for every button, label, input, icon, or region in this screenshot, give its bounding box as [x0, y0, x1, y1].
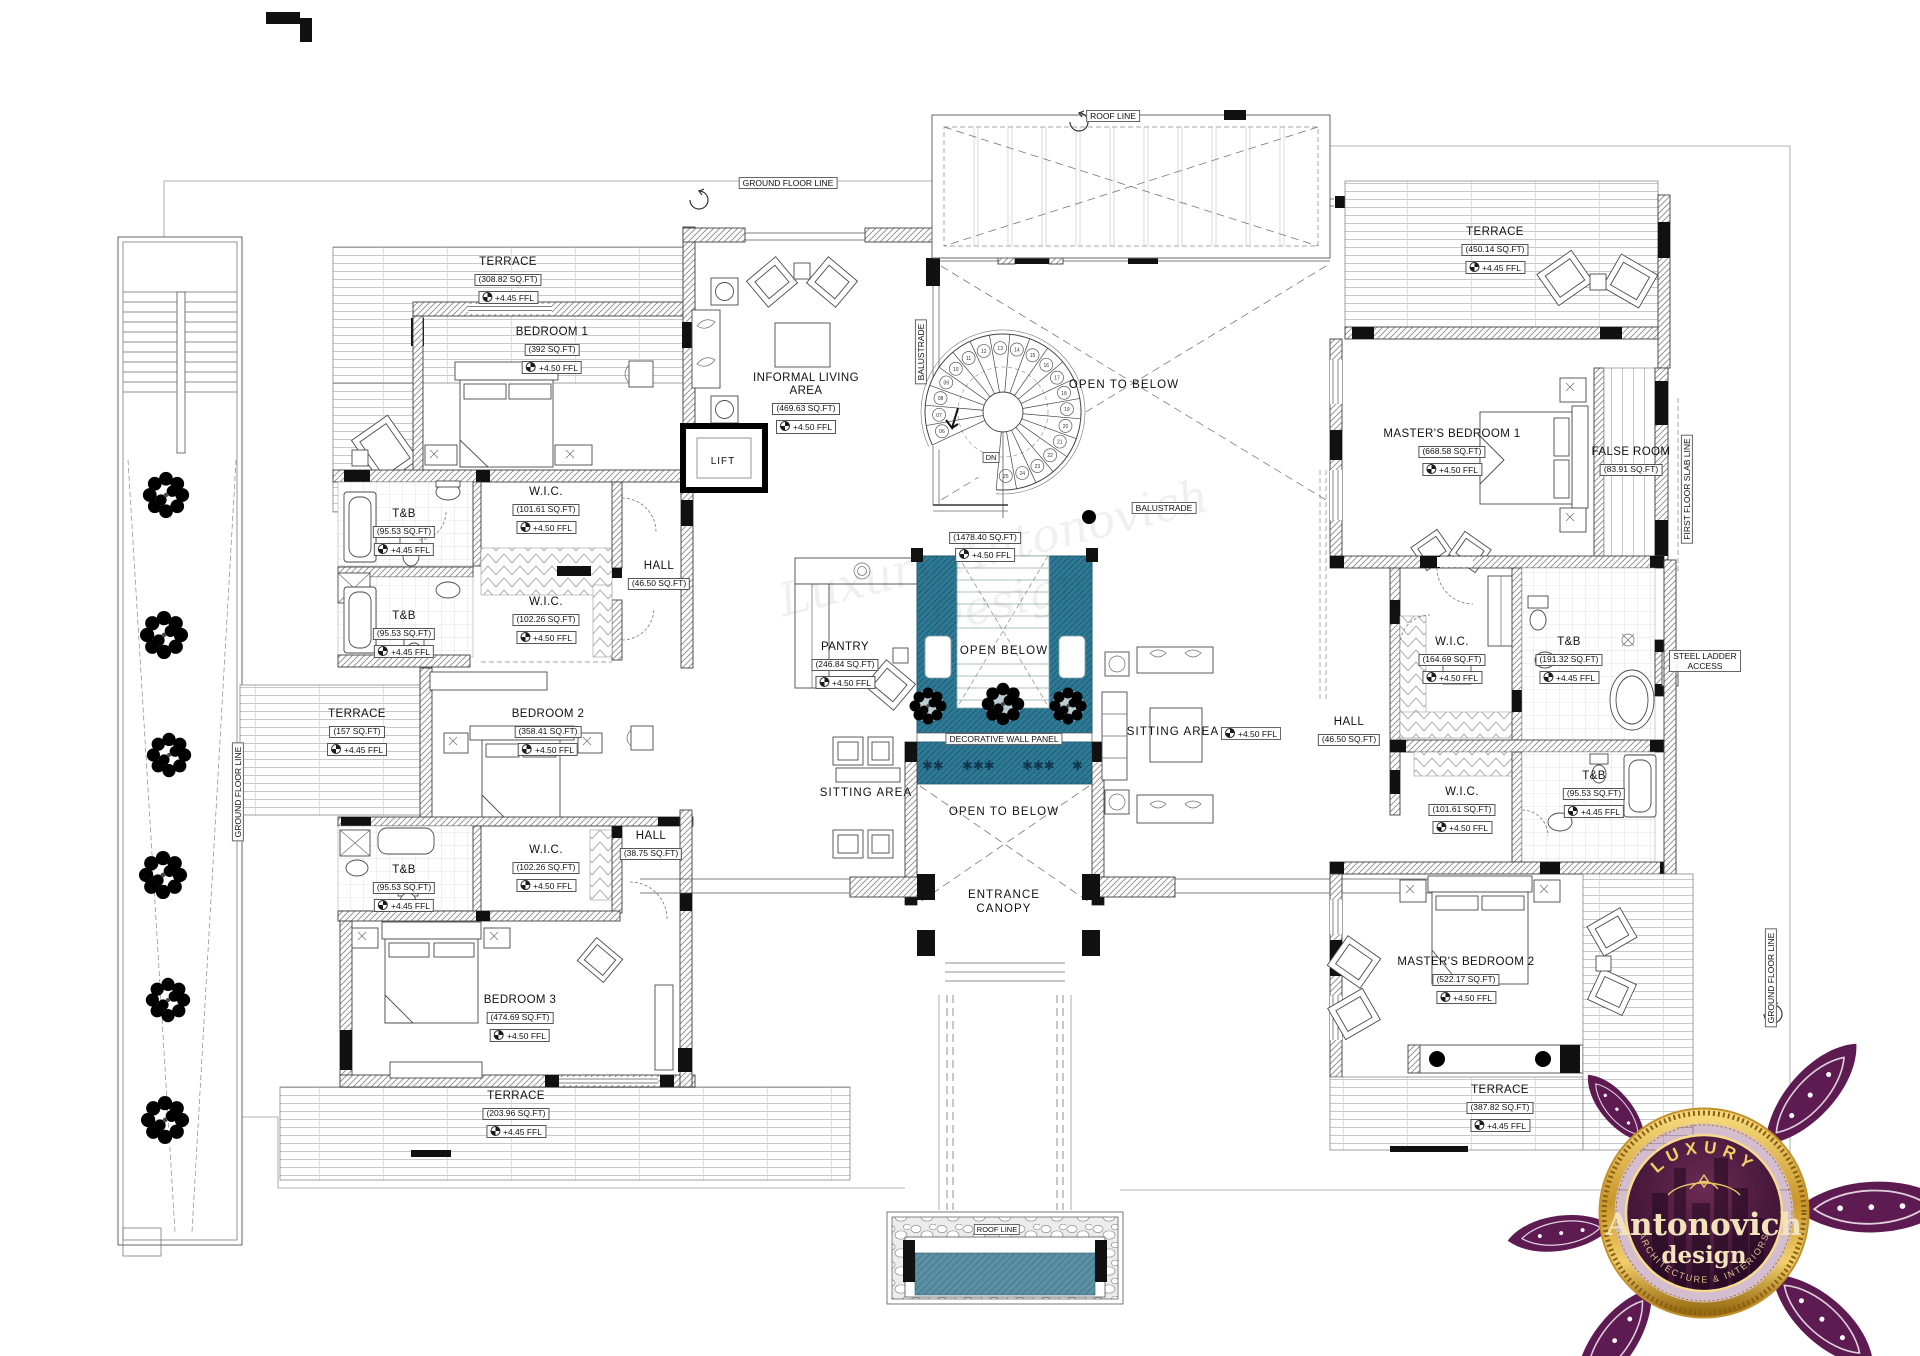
room-label-masters-bedroom-1: MASTER'S BEDROOM 1(668.58 SQ.FT)+4.50 FF… [1383, 428, 1520, 478]
room-label-wic-north: W.I.C.(101.61 SQ.FT)+4.50 FFL [512, 486, 579, 536]
room-ffl: +4.45 FFL [1564, 805, 1624, 819]
room-area: (203.96 SQ.FT) [482, 1108, 549, 1120]
annotation-dn: DN [983, 452, 1000, 463]
svg-text:17: 17 [1054, 376, 1060, 382]
room-ffl: +4.50 FFL [516, 631, 576, 645]
room-area: (102.26 SQ.FT) [512, 862, 579, 874]
annotation-pool-roof-line: ROOF LINE [974, 1224, 1020, 1235]
room-area: (392 SQ.FT) [524, 344, 579, 356]
room-ffl: +4.45 FFL [374, 899, 434, 913]
annotation-sitting-area-right: SITTING AREA [1127, 726, 1219, 740]
svg-text:13: 13 [997, 346, 1003, 352]
room-name: T&B [1535, 636, 1602, 649]
svg-text:19: 19 [1064, 407, 1070, 413]
level-target-icon [1426, 464, 1436, 474]
room-label-tb-south: T&B(95.53 SQ.FT)+4.45 FFL [373, 864, 435, 914]
room-name: W.I.C. [1418, 636, 1485, 649]
room-area: (474.69 SQ.FT) [486, 1012, 553, 1024]
room-name: HALL [628, 560, 690, 573]
room-label-terrace-bottom-left: TERRACE(203.96 SQ.FT)+4.45 FFL [482, 1090, 549, 1140]
room-ffl: +4.45 FFL [327, 743, 387, 757]
logo-brand-text: Antonovich [1605, 1207, 1802, 1243]
room-area: (1478.40 SQ.FT) [949, 532, 1021, 544]
room-area: (308.82 SQ.FT) [474, 274, 541, 286]
annotation-open-to-below-top: OPEN TO BELOW [1069, 379, 1179, 393]
room-ffl: +4.45 FFL [1470, 1119, 1530, 1133]
room-ffl: +4.50 FFL [1432, 821, 1492, 835]
level-target-icon [520, 632, 530, 642]
svg-text:10: 10 [953, 367, 959, 373]
svg-text:07: 07 [936, 413, 942, 419]
annotation-lift: LIFT [711, 456, 736, 468]
svg-text:06: 06 [939, 429, 945, 435]
floorplan-drawing: .w{fill:url(#hatch);stroke:#3f3f3f;strok… [0, 0, 1920, 1356]
annotation-first-floor-slab-line: FIRST FLOOR SLAB LINE [1681, 434, 1693, 543]
room-name: PANTRY [811, 641, 878, 654]
room-name: TERRACE [474, 256, 541, 269]
room-name: TERRACE [327, 708, 387, 721]
room-label-hall-upper-left: HALL(46.50 SQ.FT) [628, 560, 690, 592]
room-area: (95.53 SQ.FT) [373, 628, 435, 640]
svg-text:09: 09 [943, 380, 949, 386]
level-target-icon [1543, 672, 1553, 682]
room-ffl: +4.50 FFL [955, 548, 1015, 562]
room-label-pantry: PANTRY(246.84 SQ.FT)+4.50 FFL [811, 641, 878, 691]
annotation-ground-floor-line-top: GROUND FLOOR LINE [739, 177, 838, 189]
room-ffl: +4.50 FFL [516, 521, 576, 535]
level-target-icon [378, 900, 388, 910]
room-label-tb-north: T&B(95.53 SQ.FT)+4.45 FFL [373, 508, 435, 558]
annotation-sitting-area-left: SITTING AREA [820, 787, 912, 801]
room-name: TERRACE [482, 1090, 549, 1103]
svg-text:25: 25 [1003, 474, 1009, 480]
room-label-bedroom-2: BEDROOM 2(358.41 SQ.FT)+4.50 FFL [512, 708, 585, 758]
room-label-wic-mid: W.I.C.(102.26 SQ.FT)+4.50 FFL [512, 596, 579, 646]
room-ffl: +4.50 FFL [1436, 991, 1496, 1005]
annotation-decorative-wall-panel: DECORATIVE WALL PANEL [945, 733, 1062, 745]
room-area: (191.32 SQ.FT) [1535, 654, 1602, 666]
room-area: (83.91 SQ.FT) [1600, 464, 1662, 476]
room-ffl: +4.45 FFL [374, 645, 434, 659]
level-target-icon [522, 744, 532, 754]
room-ffl: +4.45 FFL [374, 543, 434, 557]
spiral-staircase: 0607080910111213141516171819202122232425 [921, 330, 1085, 518]
room-ffl: +4.45 FFL [1539, 671, 1599, 685]
room-name: W.I.C. [512, 486, 579, 499]
level-target-icon [819, 677, 829, 687]
svg-text:21: 21 [1057, 440, 1063, 446]
room-label-wic-south: W.I.C.(102.26 SQ.FT)+4.50 FFL [512, 844, 579, 894]
level-target-icon [520, 522, 530, 532]
level-target-icon [1474, 1120, 1484, 1130]
room-area: (95.53 SQ.FT) [1563, 788, 1625, 800]
room-label-first-floor-hall: (1478.40 SQ.FT)+4.50 FFL [949, 527, 1021, 564]
room-label-hall-lower-left: HALL(38.75 SQ.FT) [620, 830, 682, 862]
room-area: (358.41 SQ.FT) [514, 726, 581, 738]
room-name: W.I.C. [512, 844, 579, 857]
room-area: (157 SQ.FT) [329, 726, 384, 738]
room-name: BEDROOM 1 [516, 326, 589, 339]
room-ffl: +4.50 FFL [522, 361, 582, 375]
room-label-hall-right: HALL(46.50 SQ.FT) [1318, 716, 1380, 748]
room-name: BEDROOM 3 [484, 994, 557, 1007]
room-label-informal-living-area: INFORMAL LIVING AREA(469.63 SQ.FT)+4.50 … [750, 372, 862, 435]
room-area: (102.26 SQ.FT) [512, 614, 579, 626]
room-area: (450.14 SQ.FT) [1461, 244, 1528, 256]
room-label-wic-master2: W.I.C.(101.61 SQ.FT)+4.50 FFL [1428, 786, 1495, 836]
svg-text:14: 14 [1014, 348, 1020, 354]
room-ffl: +4.45 FFL [478, 291, 538, 305]
svg-text:✱✱: ✱✱ [922, 758, 944, 773]
room-name: W.I.C. [1428, 786, 1495, 799]
room-area: (46.50 SQ.FT) [628, 578, 690, 590]
room-name: HALL [1318, 716, 1380, 729]
courtyard: ✱✱✱✱✱ ✱✱✱✱ [910, 548, 1099, 784]
room-label-terrace-top-right: TERRACE(450.14 SQ.FT)+4.45 FFL [1461, 226, 1528, 276]
room-name: BEDROOM 2 [512, 708, 585, 721]
annotation-roof-line: ROOF LINE [1086, 110, 1140, 122]
room-area: (522.17 SQ.FT) [1432, 974, 1499, 986]
room-label-tb-mid: T&B(95.53 SQ.FT)+4.45 FFL [373, 610, 435, 660]
room-label-false-room: FALSE ROOM(83.91 SQ.FT) [1592, 446, 1671, 478]
level-target-icon [482, 292, 492, 302]
room-area: (101.61 SQ.FT) [512, 504, 579, 516]
room-area: (387.82 SQ.FT) [1466, 1102, 1533, 1114]
level-target-icon [1469, 262, 1479, 272]
room-area: (101.61 SQ.FT) [1428, 804, 1495, 816]
room-label-wic-master1: W.I.C.(164.69 SQ.FT)+4.50 FFL [1418, 636, 1485, 686]
room-label-terrace-top-left: TERRACE(308.82 SQ.FT)+4.45 FFL [474, 256, 541, 306]
level-target-icon [490, 1126, 500, 1136]
annotation-steel-ladder-access: STEEL LADDER ACCESS [1669, 650, 1741, 672]
svg-text:✱✱✱: ✱✱✱ [962, 758, 995, 773]
room-ffl: +4.50 FFL [1422, 671, 1482, 685]
room-area: (95.53 SQ.FT) [373, 882, 435, 894]
room-area: (164.69 SQ.FT) [1418, 654, 1485, 666]
level-target-icon [331, 744, 341, 754]
svg-text:✱✱✱: ✱✱✱ [1022, 758, 1055, 773]
room-area: (246.84 SQ.FT) [811, 659, 878, 671]
room-label-tb-master1: T&B(191.32 SQ.FT)+4.45 FFL [1535, 636, 1602, 686]
room-area: (469.63 SQ.FT) [772, 403, 839, 415]
level-target-icon [1568, 806, 1578, 816]
annotation-balustrade-left: BALUSTRADE [915, 320, 927, 385]
room-name: MASTER'S BEDROOM 2 [1397, 956, 1534, 969]
svg-text:12: 12 [981, 349, 987, 355]
annotation-open-below: OPEN BELOW [960, 645, 1048, 659]
annotation-entrance-canopy: ENTRANCE CANOPY [956, 889, 1052, 917]
annotation-ground-floor-line-right: GROUND FLOOR LINE [1765, 929, 1777, 1028]
room-label-bedroom-1: BEDROOM 1(392 SQ.FT)+4.50 FFL [516, 326, 589, 376]
room-name: T&B [373, 508, 435, 521]
logo-sub-text: design [1661, 1242, 1746, 1269]
svg-text:16: 16 [1043, 363, 1049, 369]
svg-text:23: 23 [1035, 464, 1041, 470]
room-name: MASTER'S BEDROOM 1 [1383, 428, 1520, 441]
room-name: T&B [1563, 770, 1625, 783]
svg-text:15: 15 [1030, 353, 1036, 359]
room-label-masters-bedroom-2: MASTER'S BEDROOM 2(522.17 SQ.FT)+4.50 FF… [1397, 956, 1534, 1006]
room-ffl: +4.45 FFL [486, 1125, 546, 1139]
level-target-icon [494, 1030, 504, 1040]
room-label-bedroom-3: BEDROOM 3(474.69 SQ.FT)+4.50 FFL [484, 994, 557, 1044]
level-target-icon [526, 362, 536, 372]
room-label-terrace-157: TERRACE(157 SQ.FT)+4.45 FFL [327, 708, 387, 758]
svg-text:08: 08 [938, 396, 944, 402]
svg-text:11: 11 [966, 356, 971, 362]
svg-text:20: 20 [1063, 424, 1069, 430]
room-ffl: +4.50 FFL [1422, 463, 1482, 477]
svg-text:✱: ✱ [1072, 758, 1083, 773]
left-garden-strip [118, 237, 242, 1256]
level-target-icon [1426, 672, 1436, 682]
room-label-tb-master2: T&B(95.53 SQ.FT)+4.45 FFL [1563, 770, 1625, 820]
room-ffl: +4.50 FFL [776, 420, 836, 434]
room-area: (38.75 SQ.FT) [620, 848, 682, 860]
room-name: TERRACE [1466, 1084, 1533, 1097]
room-name: T&B [373, 864, 435, 877]
room-area: (46.50 SQ.FT) [1318, 734, 1380, 746]
room-name: FALSE ROOM [1592, 446, 1671, 459]
level-target-icon [378, 544, 388, 554]
level-target-icon [1436, 822, 1446, 832]
level-target-icon [378, 646, 388, 656]
svg-text:22: 22 [1047, 453, 1053, 459]
level-target-icon [1225, 728, 1235, 738]
room-ffl: +4.50 FFL [490, 1029, 550, 1043]
room-ffl: +4.45 FFL [1465, 261, 1525, 275]
room-ffl: +4.50 FFL [516, 879, 576, 893]
annotation-ground-floor-line-left: GROUND FLOOR LINE [232, 743, 244, 842]
room-name: INFORMAL LIVING AREA [750, 372, 862, 398]
annotation-balustrade-mid: BALUSTRADE [1132, 502, 1197, 514]
annotation-open-to-below-bottom: OPEN TO BELOW [949, 806, 1059, 820]
room-area: (95.53 SQ.FT) [373, 526, 435, 538]
floor-plan-canvas: .w{fill:url(#hatch);stroke:#3f3f3f;strok… [0, 0, 1920, 1356]
level-target-icon [780, 421, 790, 431]
level-target-icon [959, 549, 969, 559]
room-area: (668.58 SQ.FT) [1418, 446, 1485, 458]
annotation-sitting-area-ffl: +4.50 FFL [1221, 727, 1281, 740]
svg-text:18: 18 [1061, 391, 1067, 397]
room-name: T&B [373, 610, 435, 623]
room-name: TERRACE [1461, 226, 1528, 239]
room-ffl: +4.50 FFL [518, 743, 578, 757]
svg-text:24: 24 [1019, 471, 1025, 477]
room-name: W.I.C. [512, 596, 579, 609]
level-target-icon [520, 880, 530, 890]
room-ffl: +4.50 FFL [815, 676, 875, 690]
room-label-terrace-bottom-right: TERRACE(387.82 SQ.FT)+4.45 FFL [1466, 1084, 1533, 1134]
level-target-icon [1440, 992, 1450, 1002]
room-name: HALL [620, 830, 682, 843]
